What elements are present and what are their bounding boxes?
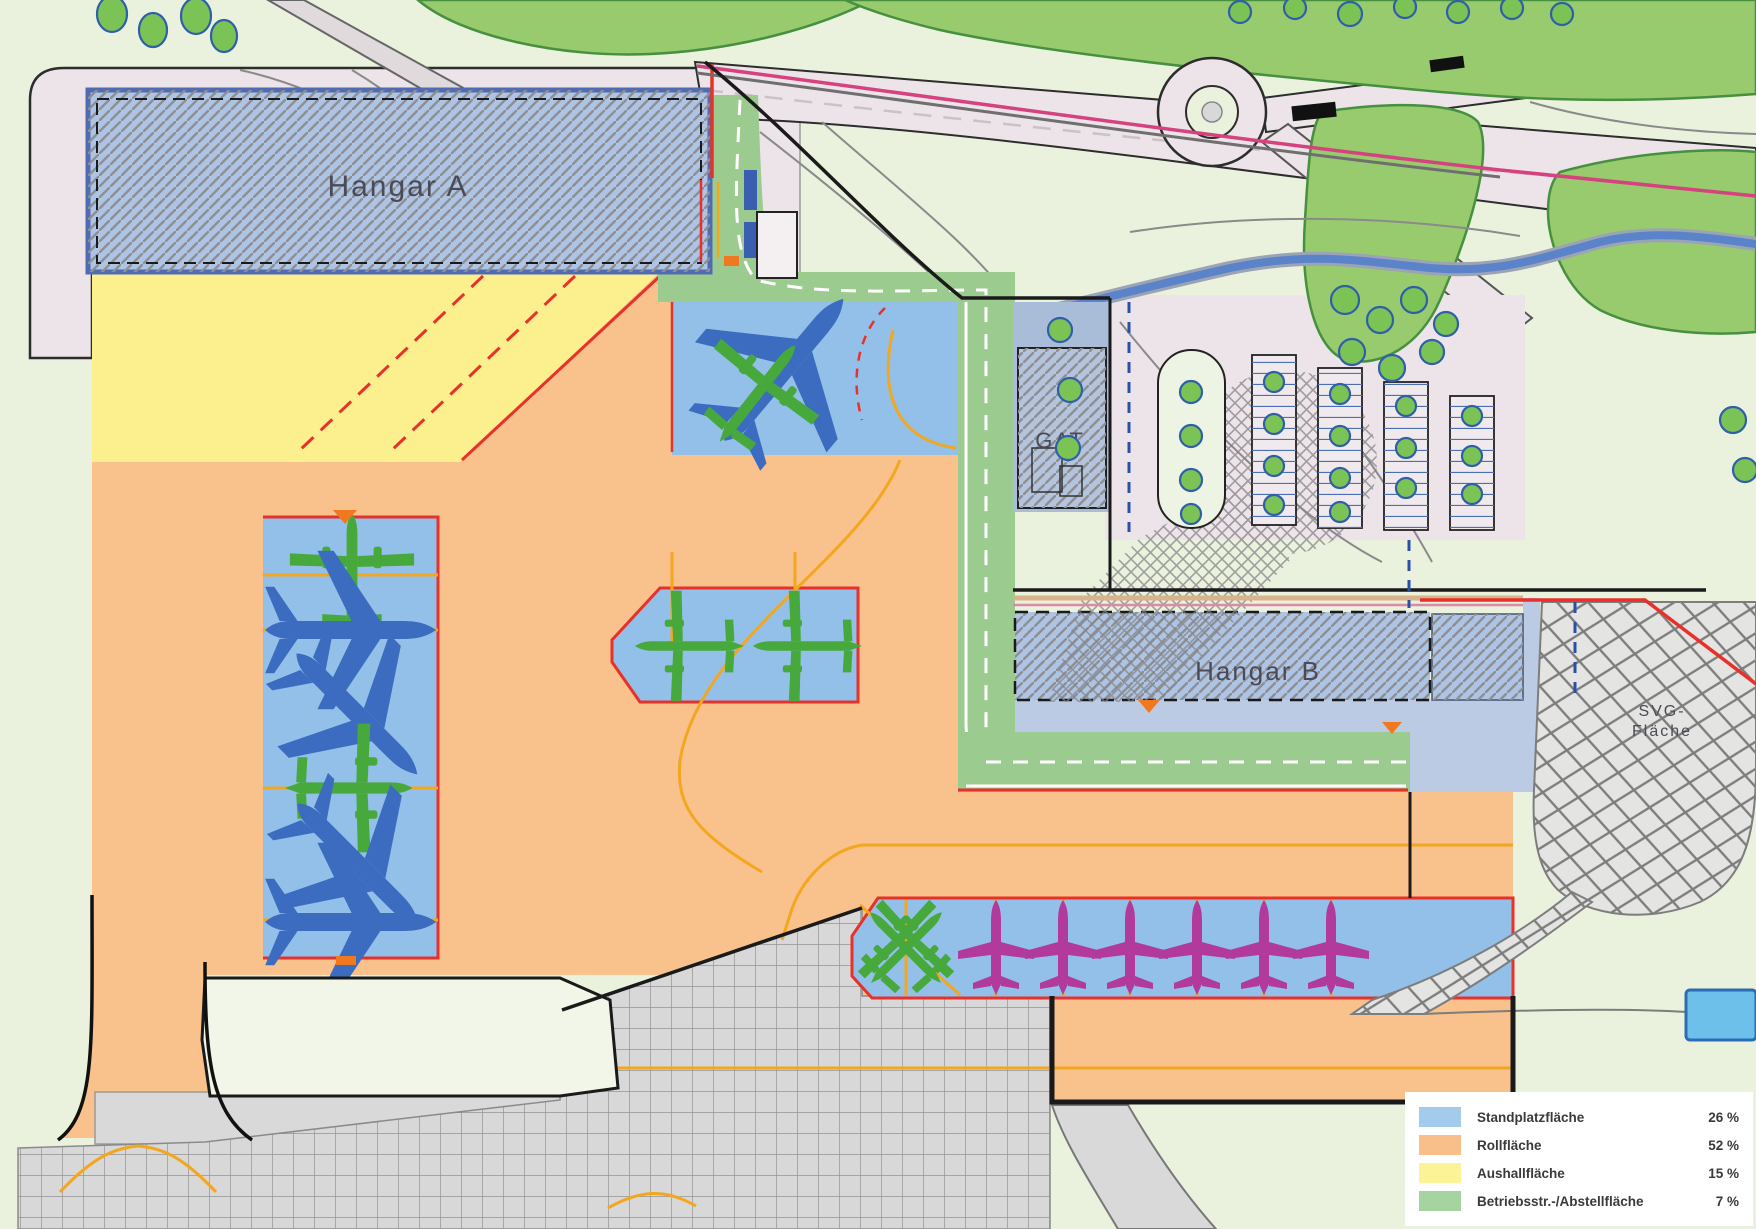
legend-value-standplatz: 26 % [1687,1110,1739,1125]
legend-label-roll: Rollfläche [1477,1138,1687,1153]
legend-label-aushall: Aushallfläche [1477,1166,1687,1181]
terminal-building [202,978,618,1096]
legend-swatch-aushall [1419,1163,1461,1183]
legend-row-roll: Rollfläche 52 % [1405,1134,1753,1157]
legend-row-aushall: Aushallfläche 15 % [1405,1162,1753,1185]
small-building [757,212,797,278]
svg-area-label-line2: Fläche [1632,723,1692,740]
roundabout [1158,58,1266,166]
legend: Standplatzfläche 26 % Rollfläche 52 % Au… [1405,1092,1753,1226]
legend-value-roll: 52 % [1687,1138,1739,1153]
legend-value-aushall: 15 % [1687,1166,1739,1181]
svg-area-label-line1: SVG- [1638,703,1685,720]
legend-value-betrieb: 7 % [1687,1194,1739,1209]
hangar-a-label: Hangar A [327,170,468,203]
legend-swatch-roll [1419,1135,1461,1155]
legend-swatch-betrieb [1419,1191,1461,1211]
legend-label-betrieb: Betriebsstr.-/Abstellfläche [1477,1194,1687,1209]
site-plan-canvas: Hangar A Hangar B GAT [0,0,1756,1229]
hangar-b-label: Hangar B [1195,656,1321,686]
pond [1686,990,1756,1040]
legend-swatch-standplatz [1419,1107,1461,1127]
legend-row-betrieb: Betriebsstr.-/Abstellfläche 7 % [1405,1190,1753,1213]
hangar-a: Hangar A [88,90,710,272]
airport-site-plan: Hangar A Hangar B GAT [0,0,1756,1229]
legend-label-standplatz: Standplatzfläche [1477,1110,1687,1125]
legend-row-standplatz: Standplatzfläche 26 % [1405,1106,1753,1129]
